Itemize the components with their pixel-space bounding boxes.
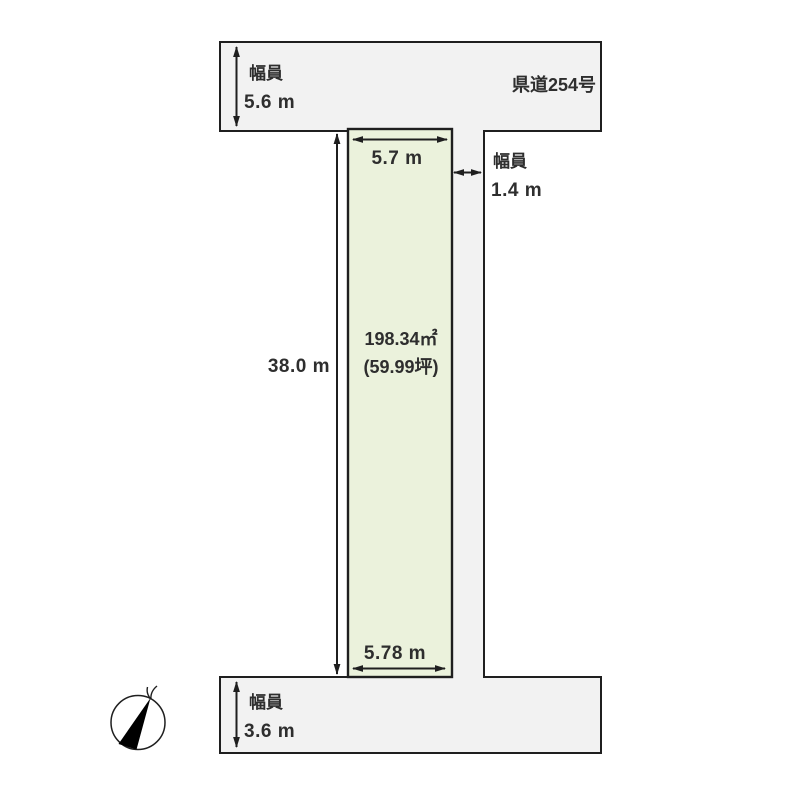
parcel-bottom-frontage-label: 5.78 m [364, 643, 426, 664]
parcel-area-label: 198.34㎡ [364, 328, 437, 349]
top-road-width-caption: 幅員 [249, 63, 283, 83]
land-plot-diagram: 幅員 5.6 m 県道254号 5.7 m 198.34㎡ (59.99坪) 3… [0, 0, 791, 790]
north-compass-icon [111, 686, 165, 750]
top-road-name: 県道254号 [512, 74, 596, 95]
site-plan-svg: 幅員 5.6 m 県道254号 5.7 m 198.34㎡ (59.99坪) 3… [0, 0, 791, 790]
parcel-top-frontage-label: 5.7 m [371, 148, 422, 169]
bottom-road-width-value: 3.6 m [244, 721, 295, 742]
parcel-depth-label: 38.0 m [268, 356, 330, 377]
bottom-road-width-caption: 幅員 [249, 692, 283, 712]
side-road-width-caption: 幅員 [493, 151, 527, 171]
side-road-width-value: 1.4 m [491, 180, 542, 201]
top-road-width-value: 5.6 m [244, 92, 295, 113]
land-parcel [348, 129, 452, 677]
parcel-area-tsubo-label: (59.99坪) [363, 357, 438, 377]
